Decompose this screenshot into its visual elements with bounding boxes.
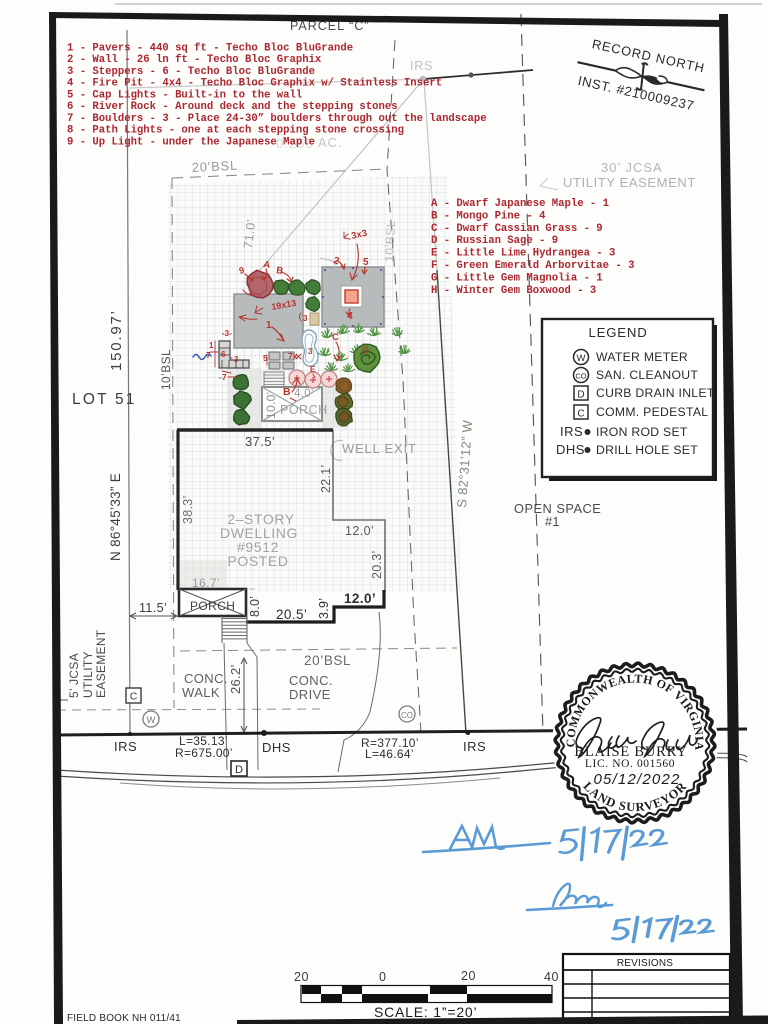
svg-text:20: 20 — [461, 969, 476, 983]
svg-text:20: 20 — [294, 970, 309, 984]
svg-text:3 - Steppers - 6 - Techo Bloc: 3 - Steppers - 6 - Techo Bloc BluGrande — [67, 66, 315, 78]
svg-text:3.9’: 3.9’ — [317, 598, 331, 619]
svg-text:8 - Path Lights - one at each: 8 - Path Lights - one at each stepping s… — [67, 125, 404, 137]
svg-text:WELL EXIT: WELL EXIT — [342, 441, 417, 456]
svg-text:7 - Boulders - 3 - Place 24-30: 7 - Boulders - 3 - Place 24-30” boulders… — [67, 113, 487, 125]
svg-text:CO: CO — [575, 372, 586, 381]
svg-text:150.97’: 150.97’ — [108, 309, 125, 371]
svg-text:IRS: IRS — [114, 739, 137, 754]
svg-text:D: D — [577, 390, 584, 401]
svg-text:11.5’: 11.5’ — [139, 601, 167, 615]
svg-text:0: 0 — [379, 970, 386, 984]
svg-text:W: W — [577, 353, 586, 364]
svg-text:38.3’: 38.3’ — [181, 495, 195, 524]
svg-text:DRILL HOLE SET: DRILL HOLE SET — [596, 443, 698, 457]
svg-text:IRS: IRS — [463, 739, 486, 754]
svg-text:COMM. PEDESTAL: COMM. PEDESTAL — [596, 405, 708, 419]
svg-text:H - Winter Gem Boxwood - 3: H - Winter Gem Boxwood - 3 — [431, 285, 596, 297]
svg-text:-: - — [230, 352, 233, 362]
svg-text:G: G — [362, 345, 369, 355]
svg-text:C: C — [332, 332, 339, 343]
svg-text:PORCH: PORCH — [190, 599, 235, 613]
svg-text:C: C — [577, 409, 584, 420]
svg-text:G - Little Gem Magnolia - 1: G - Little Gem Magnolia - 1 — [431, 272, 603, 284]
svg-text:E - Little Lime Hydrangea - 3: E - Little Lime Hydrangea - 3 — [431, 248, 615, 260]
svg-text:26.2’: 26.2’ — [228, 664, 243, 694]
svg-text:20’BSL: 20’BSL — [304, 653, 351, 668]
svg-text:WATER METER: WATER METER — [596, 350, 688, 364]
svg-text:-7: -7 — [219, 372, 227, 382]
svg-text:SCALE: 1”=20’: SCALE: 1”=20’ — [374, 1004, 477, 1020]
svg-text:22.1’: 22.1’ — [319, 464, 333, 493]
svg-text:UTILITY: UTILITY — [81, 651, 95, 698]
svg-text:DHS: DHS — [262, 740, 291, 755]
svg-text:1: 1 — [266, 320, 272, 331]
svg-text:6: 6 — [221, 350, 226, 359]
svg-text:L=46.64’: L=46.64’ — [365, 747, 414, 761]
svg-text:40: 40 — [544, 970, 559, 984]
svg-text:30’ JCSA: 30’ JCSA — [601, 160, 663, 175]
svg-text:CURB DRAIN INLET: CURB DRAIN INLET — [596, 386, 715, 400]
svg-text:12.0’: 12.0’ — [344, 591, 376, 606]
svg-text:5 - Cap Lights - Built-in to t: 5 - Cap Lights - Built-in to the wall — [67, 89, 302, 101]
svg-text:1 - Pavers - 440 sq ft - Techo: 1 - Pavers - 440 sq ft - Techo Bloc BluG… — [67, 43, 353, 55]
svg-text:F - Green Emerald Arborvitae -: F - Green Emerald Arborvitae - 3 — [431, 260, 634, 272]
svg-text:9 - Up Light - under the Japan: 9 - Up Light - under the Japanese Maple — [67, 136, 315, 148]
svg-text:C - Dwarf Cassian Grass - 9: C - Dwarf Cassian Grass - 9 — [431, 223, 603, 235]
svg-text:3: 3 — [308, 347, 313, 356]
svg-text:R=675.00’: R=675.00’ — [175, 746, 233, 760]
svg-text:10’BSL: 10’BSL — [159, 349, 173, 390]
svg-text:4.0’: 4.0’ — [294, 388, 314, 400]
svg-text:DRIVE: DRIVE — [289, 687, 331, 702]
svg-text:7x: 7x — [288, 351, 298, 361]
svg-text:20'BSL: 20'BSL — [191, 158, 238, 175]
svg-text:CONC.: CONC. — [289, 673, 333, 688]
svg-text:AC.: AC. — [318, 135, 343, 150]
svg-text:2 - Wall - 26 ln ft - Techo Bl: 2 - Wall - 26 ln ft - Techo Bloc Graphix — [67, 54, 322, 66]
svg-text:-3-: -3- — [222, 329, 232, 338]
svg-text:3: 3 — [303, 314, 308, 323]
svg-text:N 86°45’33” E: N 86°45’33” E — [108, 473, 123, 561]
svg-text:10’BSL: 10’BSL — [382, 220, 398, 262]
svg-text:5: 5 — [363, 257, 369, 268]
svg-text:FIELD BOOK NH 011/41: FIELD BOOK NH 011/41 — [67, 1013, 181, 1024]
svg-text:C: C — [130, 691, 138, 703]
svg-text:8.0’: 8.0’ — [248, 596, 262, 617]
svg-text:4 - Fire Pit - 4x4 - Techo Blo: 4 - Fire Pit - 4x4 - Techo Bloc Graphix … — [67, 78, 442, 90]
svg-text:PORCH: PORCH — [280, 403, 328, 417]
svg-text:37.5’: 37.5’ — [245, 434, 275, 449]
svg-text:CONC.: CONC. — [184, 671, 228, 686]
svg-text:5’ JCSA: 5’ JCSA — [67, 653, 81, 698]
svg-text:POSTED: POSTED — [227, 553, 288, 569]
svg-text:20.5’: 20.5’ — [276, 607, 307, 622]
svg-text:E: E — [310, 365, 316, 374]
svg-text:B: B — [283, 386, 291, 398]
svg-text:D: D — [235, 764, 243, 776]
svg-text:IRS: IRS — [560, 424, 583, 439]
svg-text:LOT 51: LOT 51 — [72, 391, 137, 408]
svg-text:6 - River Rock - Around deck a: 6 - River Rock - Around deck and the ste… — [67, 101, 398, 113]
svg-text:LEGEND: LEGEND — [588, 325, 647, 340]
svg-text:LIC. NO. 001560: LIC. NO. 001560 — [585, 758, 675, 770]
svg-text:CO: CO — [401, 711, 413, 720]
svg-text:D - Russian Sage - 9: D - Russian Sage - 9 — [431, 235, 558, 247]
svg-text:IRS: IRS — [410, 59, 433, 73]
svg-text:#1: #1 — [545, 514, 560, 529]
svg-text:1: 1 — [209, 341, 214, 350]
svg-text:10.0’: 10.0’ — [264, 391, 278, 419]
svg-text:UTILITY EASEMENT: UTILITY EASEMENT — [563, 175, 696, 190]
svg-text:W: W — [147, 715, 156, 726]
svg-text:IRON ROD SET: IRON ROD SET — [596, 425, 688, 439]
svg-text:12.0’: 12.0’ — [345, 524, 374, 538]
svg-text:05/12/2022: 05/12/2022 — [593, 771, 680, 788]
svg-text:20.3’: 20.3’ — [370, 550, 384, 579]
svg-text:DHS: DHS — [556, 442, 585, 457]
svg-text:A - Dwarf Japanese Maple - 1: A - Dwarf Japanese Maple - 1 — [431, 198, 609, 210]
svg-text:REVISIONS: REVISIONS — [617, 958, 673, 969]
svg-text:WALK: WALK — [182, 685, 220, 700]
svg-text:B - Mongo Pine - 4: B - Mongo Pine - 4 — [431, 210, 546, 222]
svg-text:EASEMENT: EASEMENT — [94, 629, 108, 698]
svg-text:3: 3 — [234, 355, 239, 364]
svg-text:SAN. CLEANOUT: SAN. CLEANOUT — [596, 368, 698, 382]
